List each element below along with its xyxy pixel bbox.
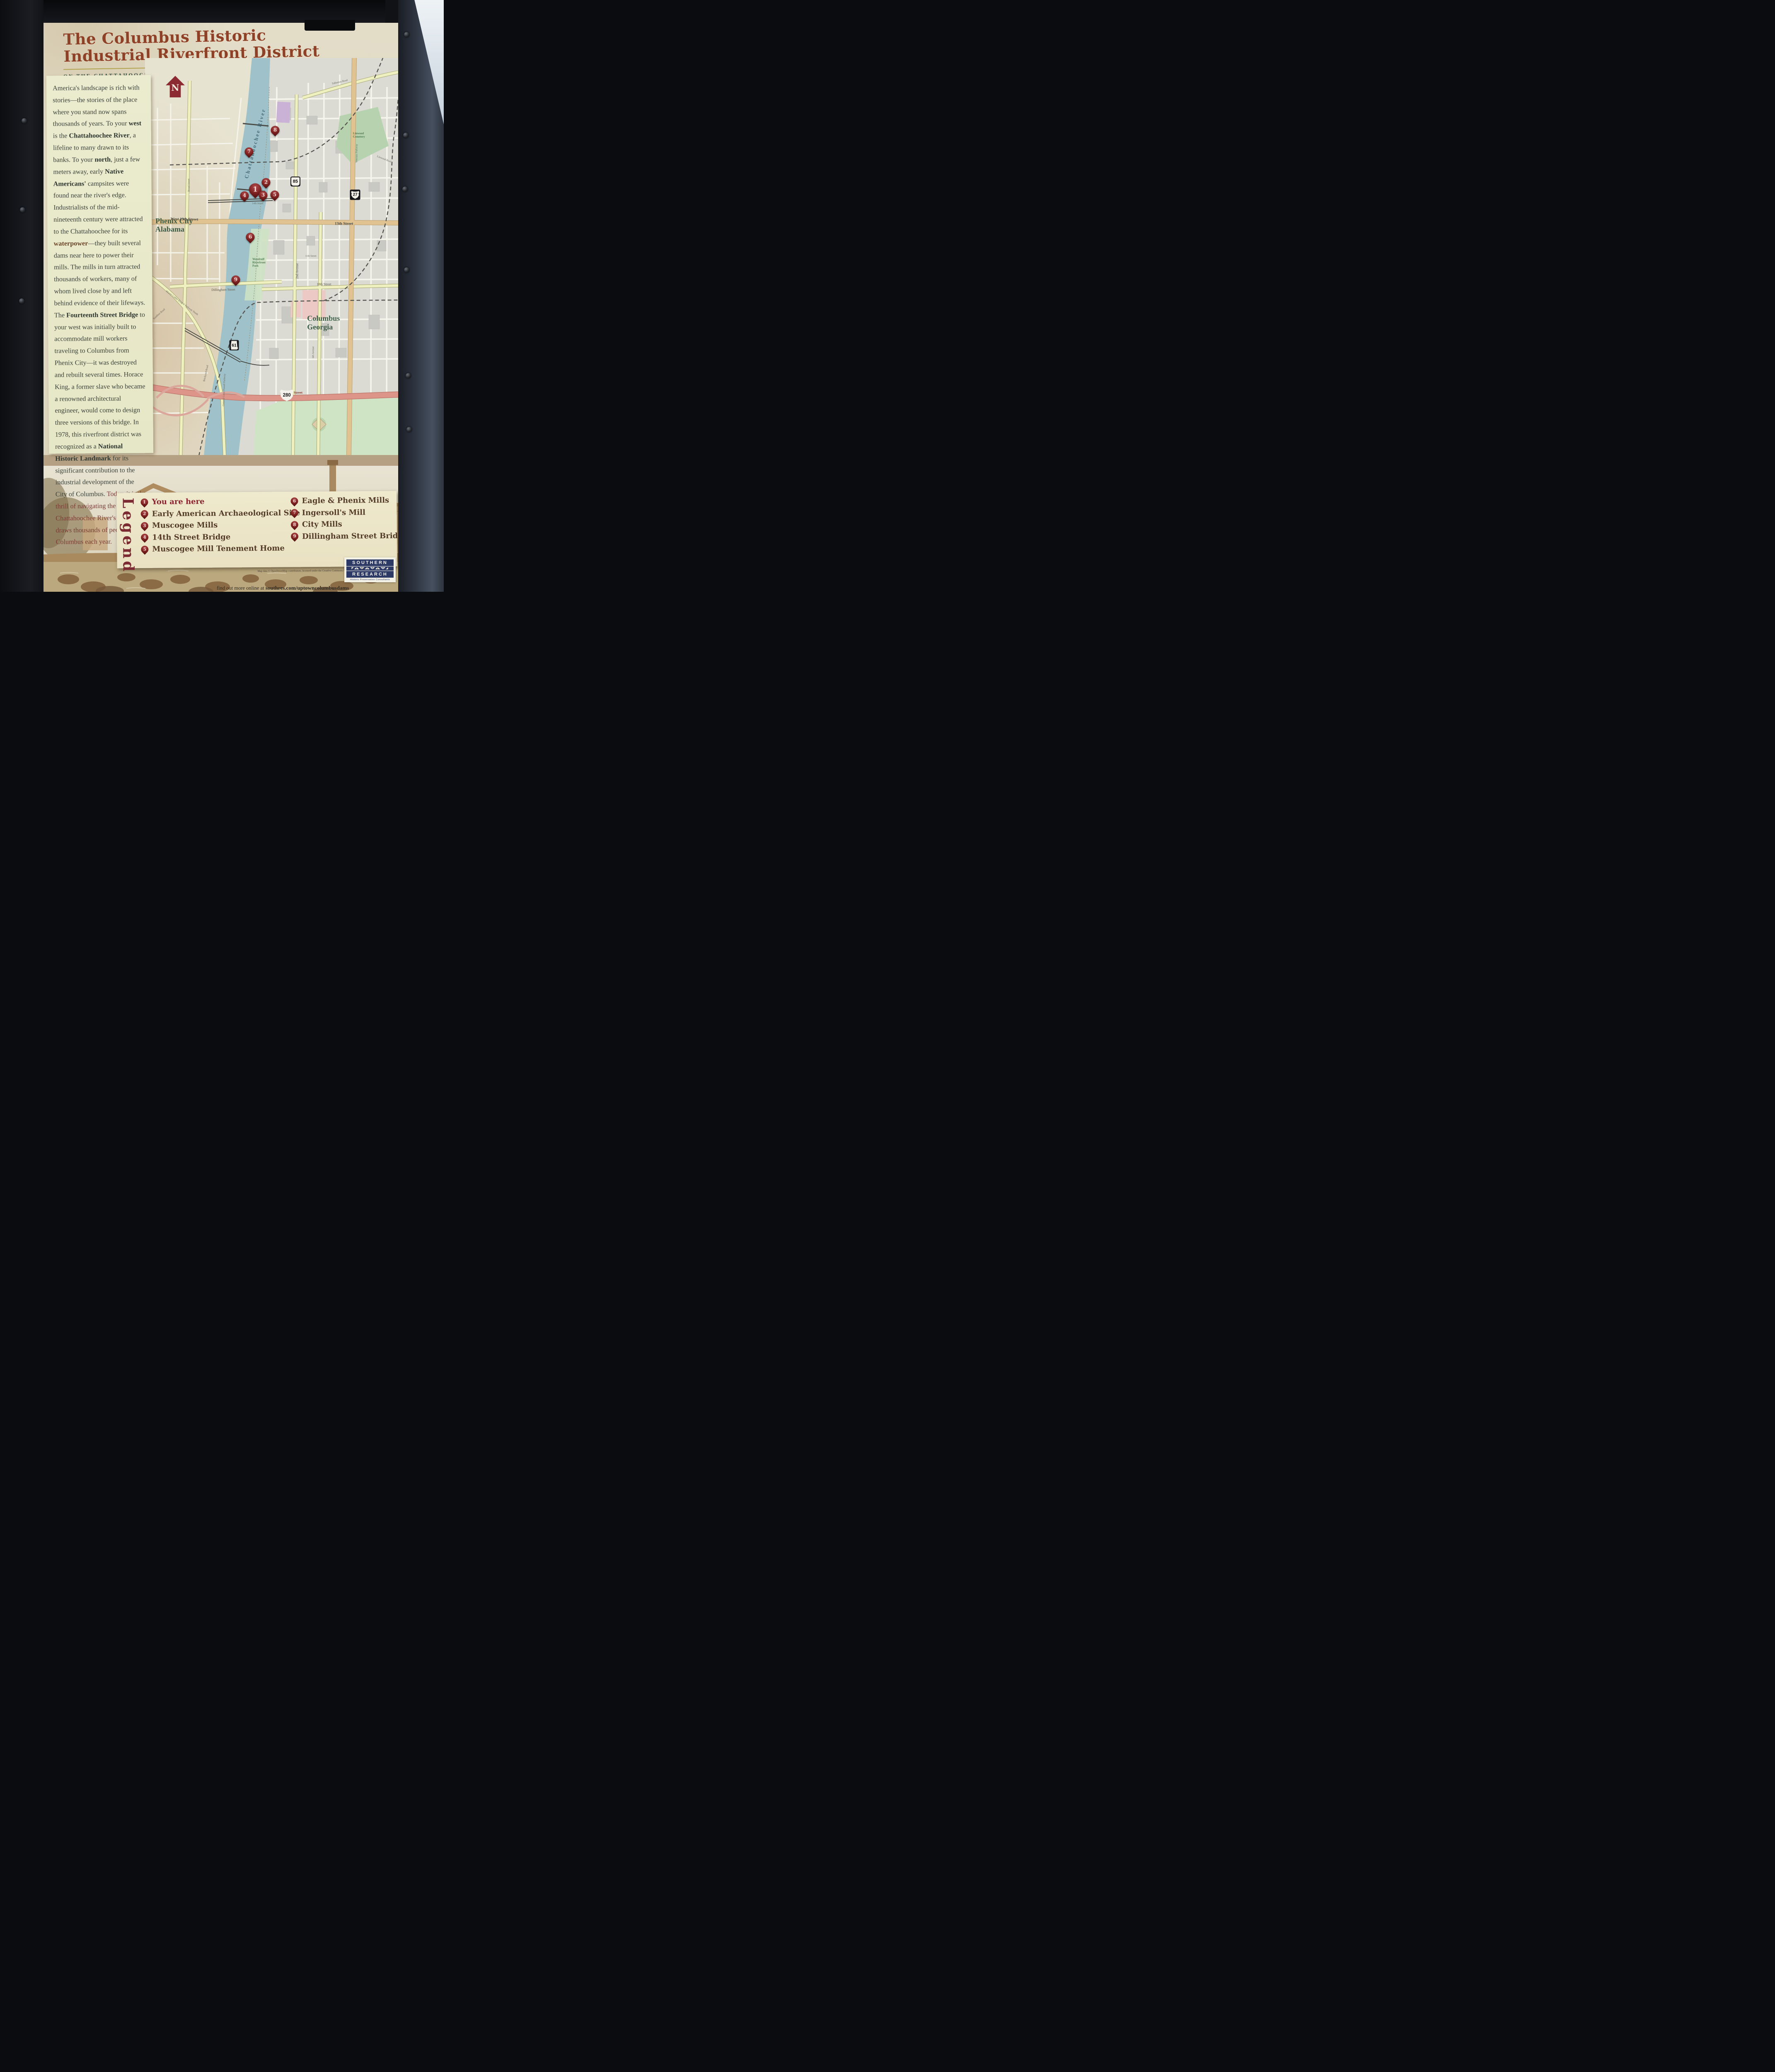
legend-pin-icon: 4 — [139, 532, 150, 542]
legend-item: 3Muscogee Mills — [141, 520, 288, 530]
intro-segment: waterpower — [54, 240, 88, 247]
intro-segment: north — [94, 156, 111, 163]
map-marker-2: 2 — [260, 176, 272, 189]
legend-heading: Legend — [119, 497, 138, 565]
legend-item-label: Muscogee Mills — [152, 521, 218, 530]
legend-item-label: Eagle & Phenix Mills — [302, 496, 389, 505]
map-label: 10th Street — [317, 283, 331, 287]
legend-pin-number: 8 — [291, 521, 298, 528]
legend-pin-icon: 6 — [289, 496, 300, 506]
intro-segment: campsites were found near the river's ed… — [53, 179, 143, 235]
riverfront-map: Chattahoochee RiverPhenix City AlabamaCo… — [145, 58, 398, 456]
screw-icon — [20, 207, 25, 213]
map-graphic — [145, 58, 398, 456]
logo-tagline: Historic Preservation Consultants — [346, 579, 394, 581]
marker-number: 8 — [271, 126, 280, 135]
map-marker-5: 5 — [268, 189, 281, 201]
legend-pin-number: 9 — [291, 533, 298, 540]
screw-icon — [22, 118, 27, 123]
legend-pin-number: 4 — [141, 534, 148, 541]
legend-items-left: 1You are here2Early American Archaeologi… — [140, 496, 288, 564]
map-label: Columbus Georgia — [307, 314, 340, 331]
map-label: Broad Street — [187, 179, 190, 192]
legend-item: 7Ingersoll's Mill — [291, 508, 398, 517]
screw-icon — [404, 32, 409, 37]
legend-pin-icon: 5 — [140, 544, 150, 554]
intro-segment: America's landscape is rich with stories… — [53, 84, 140, 128]
legend-item: 2Early American Archaeological Site — [141, 508, 288, 518]
kiosk-frame-right — [398, 0, 444, 592]
legend-pin-number: 3 — [141, 522, 148, 529]
screw-icon — [406, 373, 411, 378]
legend-item-label: Early American Archaeological Site — [152, 508, 300, 518]
legend-item: 1You are here — [140, 496, 288, 506]
intro-segment: Fourteenth Street Bridge — [66, 311, 138, 319]
legend-item-label: Ingersoll's Mill — [302, 508, 365, 517]
legend-item: 9Dillingham Street Bridge — [291, 531, 398, 541]
legend-item: 414th Street Bridge — [141, 532, 288, 542]
kiosk-photo: The Columbus Historic Industrial Riverfr… — [0, 0, 444, 592]
legend-pin-number: 2 — [141, 510, 148, 518]
legend-panel: Legend 1You are here2Early American Arch… — [116, 491, 397, 569]
legend-pin-number: 6 — [290, 497, 298, 505]
legend-pin-number: 1 — [140, 498, 148, 506]
legend-item: 5Muscogee Mill Tenement Home — [141, 544, 288, 553]
marker-number: 4 — [240, 191, 249, 200]
legend-pin-icon: 1 — [139, 497, 150, 507]
map-label: Linwood Cemetery — [353, 132, 365, 139]
legend-item-label: 14th Street Bridge — [152, 533, 230, 542]
map-label: Veterans Parkway — [355, 144, 358, 163]
intro-segment: is the — [53, 132, 69, 140]
marker-number: 3 — [259, 191, 267, 200]
screw-icon — [406, 427, 412, 432]
legend-items-right: 6Eagle & Phenix Mills7Ingersoll's Mill8C… — [290, 496, 398, 564]
map-label: 13th Street — [335, 222, 353, 227]
intro-segment: —they built several dams near here to po… — [54, 239, 145, 319]
sky-background — [401, 0, 444, 124]
route-shield-27: 27 — [350, 190, 360, 200]
legend-item-label: You are here — [152, 497, 204, 506]
screw-icon — [404, 267, 409, 273]
legend-pin-icon: 2 — [139, 508, 150, 519]
legend-item: 8City Mills — [291, 519, 398, 529]
logo-line-2: RESEARCH — [346, 571, 394, 578]
sign-poster: The Columbus Historic Industrial Riverfr… — [44, 23, 398, 592]
legend-item: 6Eagle & Phenix Mills — [290, 496, 398, 505]
map-label: Dillingham Street — [212, 288, 235, 292]
kiosk-frame-top — [0, 0, 385, 23]
map-label: Woodruff Riverfront Park — [252, 258, 266, 268]
marker-number: 7 — [245, 148, 254, 156]
logo-line-1: SOUTHERN — [346, 559, 394, 566]
map-label: West 13th Street — [170, 217, 198, 222]
map-marker-3: 3 — [257, 189, 269, 201]
map-label: 6th Avenue — [312, 346, 315, 358]
intro-text-panel: America's landscape is rich with stories… — [46, 75, 153, 454]
map-label: 11th Street — [305, 255, 317, 258]
marker-number: 9 — [231, 276, 240, 284]
southern-research-logo: SOUTHERN ◤◢◣◥◤◢◣◥◤◢◣◥◤◢ RESEARCH Histori… — [344, 557, 396, 582]
legend-pin-number: 5 — [141, 545, 148, 553]
findout-line: find out more online at southres.com/upt… — [217, 585, 349, 591]
marker-number: 5 — [270, 191, 279, 199]
intro-segment: Chattahoochee River — [69, 132, 129, 140]
route-shield-85: 85 — [290, 177, 300, 186]
screw-icon — [403, 133, 409, 138]
screw-icon — [402, 186, 408, 192]
intro-segment: to your west was initially built to acco… — [54, 311, 145, 450]
screw-icon — [19, 298, 24, 304]
legend-pin-icon: 9 — [289, 531, 300, 542]
marker-number: 6 — [246, 232, 255, 241]
legend-item-label: City Mills — [302, 520, 342, 529]
logo-pattern-icon: ◤◢◣◥◤◢◣◥◤◢◣◥◤◢ — [346, 566, 394, 571]
findout-prefix: find out more online at — [217, 585, 266, 591]
map-label: 2nd Avenue — [296, 263, 300, 279]
kiosk-frame-tab — [305, 20, 355, 31]
legend-pin-icon: 7 — [289, 508, 300, 518]
legend-pin-icon: 8 — [289, 519, 300, 530]
legend-item-label: Dillingham Street Bridge — [302, 531, 398, 541]
route-shield-61: 61 — [230, 340, 239, 351]
intro-segment: west — [128, 120, 141, 127]
route-number: 27 — [351, 191, 359, 199]
route-number: 85 — [291, 177, 300, 186]
route-number: 61 — [230, 341, 238, 350]
findout-url: southres.com/uptowncolumbusdams — [266, 585, 349, 591]
legend-pin-icon: 3 — [139, 520, 150, 531]
legend-pin-number: 7 — [291, 509, 298, 516]
marker-number: 2 — [262, 178, 271, 187]
kiosk-frame-left — [0, 0, 44, 592]
intro-paragraph: America's landscape is rich with stories… — [53, 82, 148, 548]
map-label: 14th Street — [252, 202, 263, 205]
legend-item-label: Muscogee Mill Tenement Home — [152, 544, 285, 554]
